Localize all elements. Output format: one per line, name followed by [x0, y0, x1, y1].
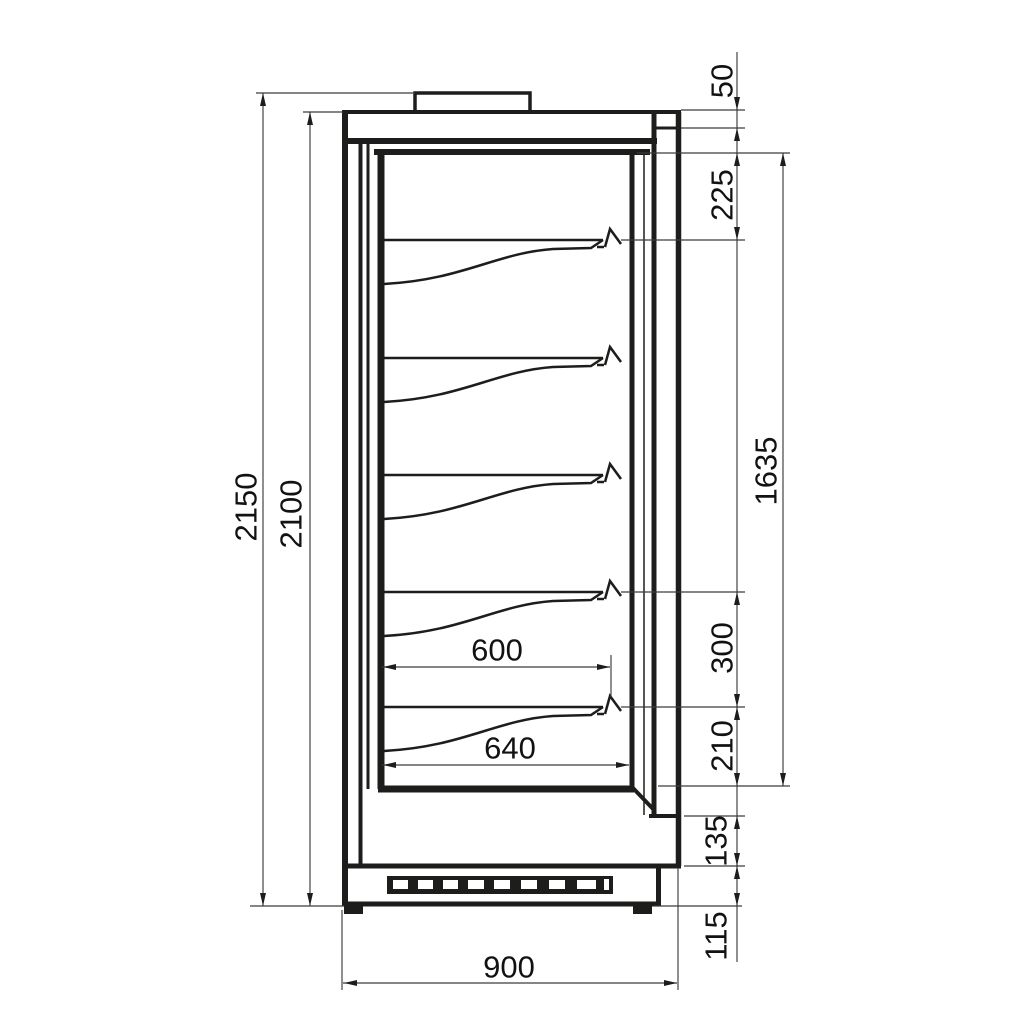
dim-label-overall-height: 2150	[229, 473, 264, 542]
dim-label-top-to-first-shelf: 225	[705, 169, 740, 221]
dimension-labels: 2150 2100 50 225 1635 300 210 135 115 60…	[229, 64, 784, 985]
shelf-2	[382, 347, 621, 402]
shelf-1	[382, 229, 621, 284]
dim-label-canopy-height: 50	[705, 64, 740, 98]
shelf-4	[382, 581, 621, 636]
dim-label-bottom-well-depth: 640	[484, 731, 536, 766]
cabinet-structure	[342, 93, 681, 914]
top-unit-box	[415, 93, 530, 112]
dim-label-shelf-spacing: 300	[705, 622, 740, 674]
dim-label-body-height: 2100	[274, 480, 309, 549]
ventilation-grille	[387, 876, 613, 894]
dim-label-interior-height: 1635	[749, 437, 784, 506]
dim-label-overall-depth: 900	[483, 950, 535, 985]
dim-label-lower-front-height: 135	[699, 815, 734, 867]
dim-label-plinth-height: 115	[699, 911, 734, 960]
shelf-3	[382, 464, 621, 519]
foot-left	[344, 904, 363, 914]
shelves	[382, 229, 621, 751]
dim-label-last-shelf-to-bottom: 210	[705, 720, 740, 772]
technical-drawing-display-cabinet-side-view: 2150 2100 50 225 1635 300 210 135 115 60…	[0, 0, 1024, 1024]
foot-right	[633, 904, 652, 914]
dim-label-shelf-depth: 600	[471, 633, 523, 668]
